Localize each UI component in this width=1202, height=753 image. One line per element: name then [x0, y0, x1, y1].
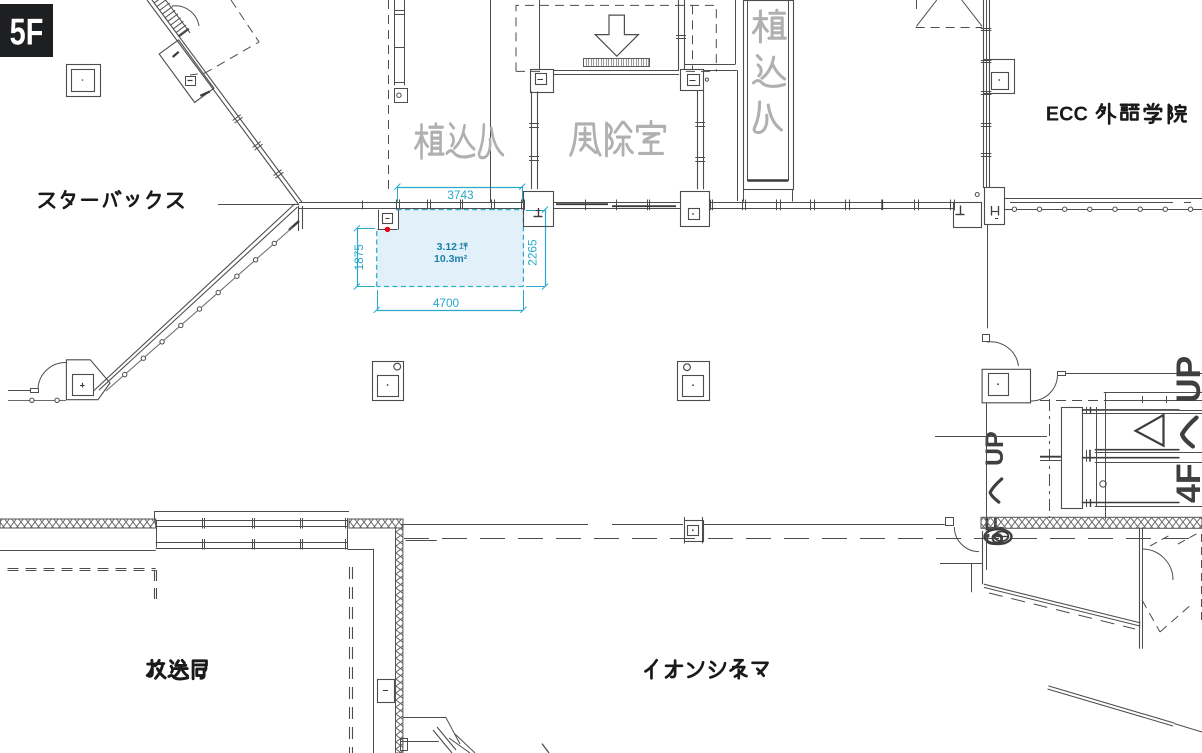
svg-text:UP: UP [1170, 356, 1202, 403]
svg-text:4700: 4700 [433, 296, 460, 310]
svg-text:3.12: 3.12 [437, 241, 458, 253]
svg-text:2265: 2265 [526, 239, 540, 266]
svg-text:5F: 5F [10, 12, 44, 53]
svg-text:4F: 4F [1170, 463, 1202, 503]
svg-text:1875: 1875 [352, 244, 366, 271]
svg-text:3743: 3743 [447, 188, 474, 202]
svg-text:ECC: ECC [1046, 104, 1088, 126]
svg-text:10.3m²: 10.3m² [434, 253, 468, 265]
